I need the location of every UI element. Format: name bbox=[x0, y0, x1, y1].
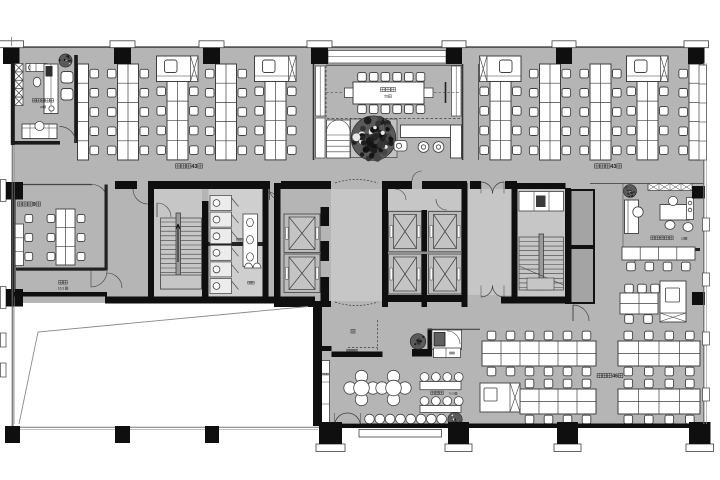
svg-text:9: 9 bbox=[33, 202, 36, 208]
svg-text:43: 43 bbox=[610, 164, 616, 170]
svg-text:16.3: 16.3 bbox=[58, 287, 64, 291]
svg-text:70.5: 70.5 bbox=[449, 392, 455, 396]
svg-text:20: 20 bbox=[40, 105, 44, 109]
svg-text:15: 15 bbox=[681, 237, 685, 241]
svg-text:55: 55 bbox=[384, 95, 388, 99]
svg-text:43: 43 bbox=[191, 164, 197, 170]
svg-text:46: 46 bbox=[612, 374, 618, 380]
